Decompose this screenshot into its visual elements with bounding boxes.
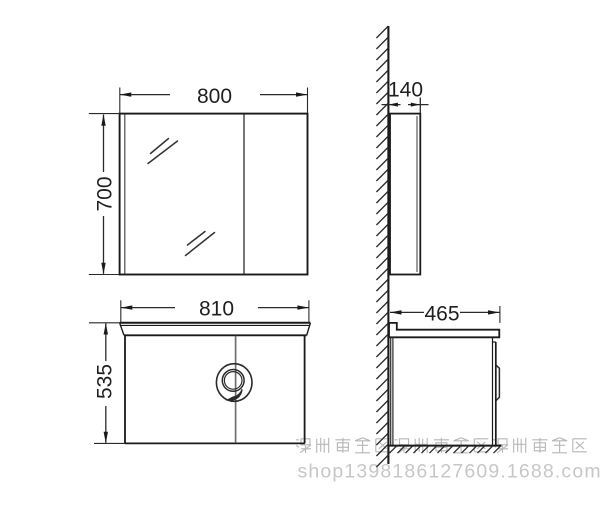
svg-text:465: 465: [424, 302, 459, 325]
svg-text:810: 810: [199, 298, 234, 321]
svg-text:shop1398186127609.1688.com: shop1398186127609.1688.com: [298, 461, 602, 483]
svg-text:800: 800: [197, 85, 232, 108]
svg-text:140: 140: [388, 79, 423, 102]
svg-text:700: 700: [93, 176, 116, 211]
svg-text:535: 535: [93, 364, 116, 399]
